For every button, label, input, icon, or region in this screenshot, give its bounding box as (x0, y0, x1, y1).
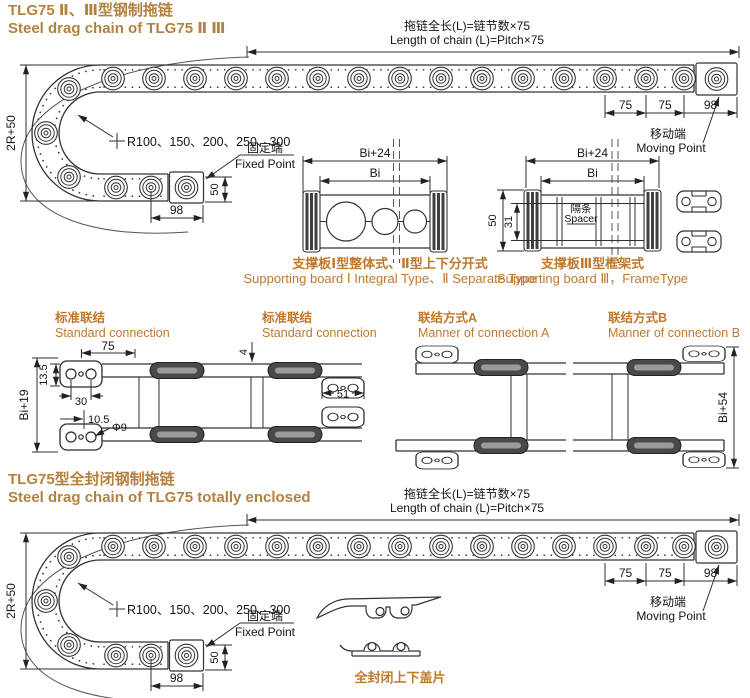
moving-end-link (696, 63, 737, 95)
dim-pitch-b: 75 (658, 98, 672, 112)
link-segment (268, 427, 322, 443)
dim-end-98: 98 (704, 98, 718, 112)
cs1-medium-bore (372, 209, 398, 235)
dim-75: 75 (101, 339, 115, 353)
section2-title-zh: TLG75型全封闭钢制拖链 (8, 470, 176, 488)
dim-fixed-height: 50 (209, 183, 221, 195)
link-segment (627, 360, 681, 376)
fixed-point-zh: 固定端 (247, 140, 283, 155)
clamp-bracket-bottom (677, 231, 721, 252)
link-segment (627, 438, 681, 454)
link-segment (474, 438, 528, 454)
cs1-caption-en: Supporting board Ⅰ Integral Type、Ⅱ Separ… (243, 271, 536, 286)
cs1-dim-outer: Bi+24 (359, 146, 390, 160)
dim-13-5: 13.5 (38, 364, 50, 385)
cs1-small-bore (404, 210, 427, 233)
cs1-right-cap (430, 191, 447, 252)
pitch-dimensions: 75 75 98 (605, 95, 737, 118)
dim-bi54: Bi+54 (716, 392, 730, 423)
manner-b-label-zh: 联结方式B (608, 310, 667, 325)
cs3-caption-en: Supporting board Ⅲ，FrameType (497, 271, 688, 286)
cs3-dim-height: 50 (487, 214, 499, 226)
moving-point-en: Moving Point (636, 141, 706, 155)
manner-b-drawing: Bi+54 (573, 346, 739, 468)
cs3-left-cap (524, 190, 541, 251)
link-segment (268, 363, 322, 379)
standard-b-label-en: Standard connection (262, 326, 377, 340)
manner-b-top-bracket (683, 346, 725, 362)
standard-connection-drawing: 75 13.5 30 Bi+19 10.5 Φ9 4 51 (17, 339, 364, 452)
cs3-spacer-en: Spacer (564, 213, 598, 225)
cs3-right-cap (644, 190, 661, 251)
dim-2r50: 2R+50 (4, 115, 18, 151)
cover-profiles: 全封闭上下盖片 (317, 597, 446, 685)
standard-a-label-en: Standard connection (55, 326, 170, 340)
dim-pitch-a: 75 (619, 98, 633, 112)
cover-profile-bottom (340, 643, 420, 657)
cs1-dim-inner: Bi (370, 166, 381, 180)
section1-title-zh: TLG75 Ⅱ、Ⅲ型钢制拖链 (8, 1, 174, 19)
cs1-large-bore (327, 202, 366, 241)
dim-10-5: 10.5 (88, 414, 109, 426)
section2-title-en: Steel drag chain of TLG75 totally enclos… (8, 489, 311, 506)
cs1-caption-zh: 支撑板Ⅰ型整体式、Ⅱ型上下分开式 (291, 256, 487, 271)
clamp-bracket-top (677, 191, 721, 212)
cover-label-zh: 全封闭上下盖片 (353, 670, 445, 685)
dim-30: 30 (75, 396, 87, 408)
enclosed-chain-drawing (4, 486, 739, 698)
cs3-dim-inner: Bi (587, 166, 598, 180)
standard-a-label-zh: 标准联结 (54, 310, 106, 325)
link-segment (150, 427, 204, 443)
catalog-page: 拖链全长(L)=链节数×75 Length of chain (L)=Pitch… (0, 0, 750, 698)
link-segment (150, 363, 204, 379)
dim-fixed-width: 98 (170, 203, 184, 217)
drag-chain-drawing: 拖链全长(L)=链节数×75 Length of chain (L)=Pitch… (4, 18, 739, 233)
manner-b-bottom-bracket (683, 452, 725, 468)
fixed-point-en: Fixed Point (235, 157, 296, 171)
manner-a-bottom-bracket (416, 452, 458, 469)
link-segment (474, 360, 528, 376)
left-bottom-bracket (60, 424, 102, 450)
cs1-left-cap (303, 191, 320, 252)
dim-bi19: Bi+19 (17, 389, 31, 420)
manner-a-drawing (396, 346, 566, 469)
cs3-dim-inner-height: 31 (503, 216, 515, 228)
standard-b-label-zh: 标准联结 (261, 310, 313, 325)
cs3-dim-outer: Bi+24 (577, 146, 608, 160)
manner-b-label-en: Manner of connection B (608, 326, 740, 340)
cs3-caption-zh: 支撑板Ⅲ型框架式 (540, 256, 644, 271)
manner-a-top-bracket (416, 346, 458, 363)
drawing-canvas: 拖链全长(L)=链节数×75 Length of chain (L)=Pitch… (0, 0, 750, 698)
section1-title-en: Steel drag chain of TLG75 Ⅱ Ⅲ (8, 20, 225, 37)
left-top-bracket (60, 361, 102, 387)
manner-a-label-zh: 联结方式A (418, 310, 477, 325)
right-bottom-bracket (322, 407, 364, 427)
moving-point-zh: 移动端 (650, 127, 686, 141)
cross-section-type3: Bi+24 Bi 隔条 Spacer 50 31 支撑板Ⅲ型框架式 Suppor… (487, 139, 688, 286)
fixed-end-link (170, 172, 204, 203)
dim-4: 4 (238, 349, 250, 355)
chain-length-note-en: Length of chain (L)=Pitch×75 (390, 33, 544, 47)
dim-phi9: Φ9 (112, 422, 127, 434)
manner-a-label-en: Manner of connection A (418, 326, 550, 340)
dim-51: 51 (337, 389, 349, 401)
chain-length-note-zh: 拖链全长(L)=链节数×75 (404, 18, 530, 33)
